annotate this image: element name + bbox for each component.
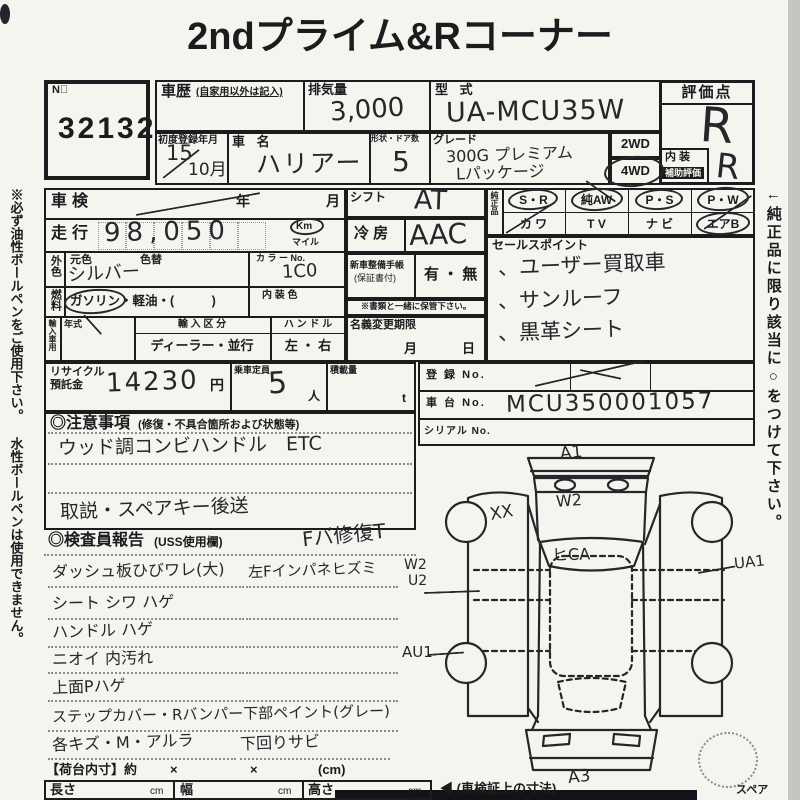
interior-score-value: R: [714, 147, 741, 187]
transfer-label: 名義変更期限: [350, 319, 416, 331]
dims-div-1: [173, 780, 175, 800]
service-book-divider: [414, 253, 416, 299]
report-l3a: ハンドル ハゲ: [52, 620, 154, 641]
repaint-label: 色替: [140, 254, 162, 266]
grade-label: グレード: [433, 134, 477, 146]
handle-options: 左 ・ 右: [270, 339, 346, 354]
displacement-label: 排気量: [308, 83, 347, 98]
dims-width-cm: cm: [278, 786, 291, 797]
int-color-label: 内 装 色: [262, 290, 298, 301]
recycle-value: 14230: [106, 366, 200, 398]
report-l6a: ステップカバー・Rバンパー下部ペイント(グレー): [52, 703, 390, 726]
report-rule-7b: [240, 758, 390, 760]
equip-navi: ナ ビ: [628, 218, 691, 231]
first-reg-month: 10月: [188, 161, 227, 180]
load-label: 積載量: [330, 365, 357, 375]
model-code-label: 型 式: [435, 83, 477, 98]
diagram-a1-label: A1: [559, 443, 583, 464]
diagram-a3-label: A3: [567, 767, 591, 788]
int-color-divider: [248, 286, 250, 318]
equip-tv: T V: [565, 218, 628, 231]
spare-tire-circle: [698, 732, 758, 788]
report-rule-1a: [48, 586, 244, 588]
reg-no-label: 登 録 No.: [426, 369, 486, 381]
displacement-value: 3,000: [329, 93, 405, 127]
lot-label: N゚: [52, 84, 68, 96]
report-l1b: 左Fインパネヒズミ: [248, 560, 377, 581]
transfer-month: 月: [404, 342, 417, 357]
notes-sub: (修復・不具合箇所および状態等): [138, 419, 299, 431]
import-kind-label: 輸 入 区 分: [134, 319, 270, 330]
report-rule-7a: [48, 758, 236, 760]
dims-length-label: 長さ: [50, 783, 76, 798]
left-margin-note: ※必ず油性ボールペンをご使用下さい。 水性ボールペンは使用できません。: [8, 188, 23, 638]
cargo-x2: ×: [250, 763, 258, 778]
notes-rule-2: [48, 463, 412, 465]
diagram-xx-label: XX: [489, 502, 515, 525]
sales-point-2: 、サンルーフ: [498, 286, 623, 314]
load-divider: [326, 362, 328, 412]
diagram-fca-label: ヒCA: [552, 545, 591, 564]
reg-cell-div-2: [650, 362, 651, 390]
cargo-x1: ×: [170, 763, 178, 778]
report-rule-4b: [246, 672, 398, 674]
wd2-label: 2WD: [610, 137, 661, 152]
doors-value: 5: [392, 146, 410, 177]
report-l1a: ダッシュ板ひびワレ(大): [52, 560, 225, 581]
equip-label: 純正品: [489, 191, 498, 235]
history-note: (自家用以外は記入): [196, 87, 283, 98]
cargo-unit: (cm): [318, 763, 345, 778]
transfer-day: 日: [462, 342, 475, 357]
colorno-value: 1C0: [281, 261, 317, 283]
cargo-label: 【荷台内寸】約: [46, 763, 137, 778]
diagram-au1-label: AU1: [402, 644, 433, 661]
recycle-label-2: 預託金: [50, 379, 83, 391]
ext-color-label: 外色: [49, 255, 61, 285]
report-l5a: 上面Pハゲ: [52, 677, 126, 697]
dims-length-cm: cm: [150, 786, 163, 797]
interior-sub-label: 補助評価: [662, 167, 704, 179]
import-kind-divider: [134, 333, 346, 334]
report-rule-6: [48, 730, 398, 732]
diagram-w2-margin-label: W2: [404, 558, 427, 574]
capacity-nin: 人: [308, 390, 320, 403]
capacity-divider: [230, 362, 232, 412]
report-title: ◎検査員報告: [48, 532, 144, 550]
recycle-yen: 円: [210, 378, 224, 394]
doors-label: 形状・ドア数: [371, 135, 419, 144]
import-year-label: 年式: [64, 319, 82, 329]
report-l2a: シート シワ ハゲ: [52, 593, 174, 613]
report-sub: (USS使用欄): [154, 536, 223, 549]
model-code-value: UA-MCU35W: [446, 95, 626, 128]
handle-label: ハ ン ド ル: [270, 319, 346, 330]
dims-height-label: 高さ: [308, 783, 334, 798]
ac-divider: [404, 218, 406, 253]
notes-rule-3: [48, 492, 412, 494]
report-rule-2b: [246, 618, 398, 620]
service-book-sub: (保証書付): [354, 273, 396, 283]
report-rule-0: [44, 554, 416, 556]
dims-width-label: 幅: [180, 783, 193, 798]
page-title: 2ndプライム&Rコーナー: [160, 16, 640, 59]
capacity-label: 乗車定員: [234, 365, 270, 375]
report-l7a: 各キズ・M・アルラ: [52, 732, 194, 755]
diagram-ua1-label: UA1: [733, 552, 765, 572]
scan-artifact: [0, 4, 10, 24]
service-book-label: 新車整備手帳: [350, 260, 404, 270]
fuel-label: 燃料: [49, 289, 61, 317]
colorno-divider: [248, 251, 250, 288]
service-book-options: 有 ・ 無: [424, 267, 477, 284]
car-name-value: ハリアー: [256, 149, 363, 179]
dims-height-cm: cm: [408, 786, 421, 797]
vin-label: 車 台 No.: [426, 397, 486, 409]
report-rule-3b: [246, 646, 398, 648]
ac-label: 冷 房: [354, 226, 388, 243]
vin-value: MCU350001057: [506, 389, 715, 418]
sales-label: セールスポイント: [492, 239, 588, 252]
notes-title: ◎注意事項: [50, 415, 130, 433]
diagram-u2-margin-label: U2: [408, 574, 427, 590]
diagram-w2-hood-label: W2: [555, 491, 582, 511]
history-label: 車歴: [161, 84, 191, 101]
mileage-mile-label: マイル: [292, 237, 319, 247]
car-name-label: 車 名: [232, 135, 274, 150]
ext-color-divider: [64, 251, 66, 288]
recycle-label-1: リサイクル: [50, 366, 104, 378]
spare-label: スペア: [736, 784, 768, 796]
mileage-label: 走行: [51, 225, 93, 243]
mileage-value: 98,050: [104, 217, 231, 248]
grade-value-2: Lパッケージ: [456, 162, 545, 183]
mileage-digit-box: [238, 222, 266, 250]
dims-div-2: [302, 780, 304, 800]
shift-label: シフト: [350, 191, 386, 204]
import-divider-1: [60, 316, 62, 362]
import-label: 輸入車用: [47, 319, 56, 359]
load-ton: t: [402, 392, 406, 405]
dims-table: [44, 780, 432, 800]
import-kind-options: ディーラー・並行: [134, 339, 270, 354]
auction-sheet: 2ndプライム&Rコーナー ※必ず油性ボールペンをご使用下さい。 水性ボールペン…: [0, 0, 800, 800]
reg-div-2: [418, 418, 755, 420]
ac-value: AAC: [408, 218, 467, 251]
serial-label: シリアル No.: [424, 426, 491, 437]
interior-label: 内 装: [665, 151, 690, 163]
capacity-value: 5: [267, 367, 288, 402]
shaken-label: 車検: [51, 193, 93, 211]
report-rule-1b: [246, 586, 398, 588]
shaken-month: 月: [326, 194, 340, 210]
lot-number: 32132: [58, 112, 156, 146]
scan-edge-right: [788, 0, 800, 800]
report-rule-4a: [48, 672, 244, 674]
shift-value: AT: [413, 185, 447, 216]
report-l4a: ニオイ 内汚れ: [52, 649, 153, 669]
report-rule-5a: [48, 700, 244, 702]
base-color-value: シルバー: [68, 262, 141, 286]
keep-note: ※書類と一緒に保管下さい。: [346, 302, 486, 312]
report-l7b: 下回りサビ: [240, 733, 321, 754]
sales-point-3: 、黒革シート: [498, 318, 625, 346]
